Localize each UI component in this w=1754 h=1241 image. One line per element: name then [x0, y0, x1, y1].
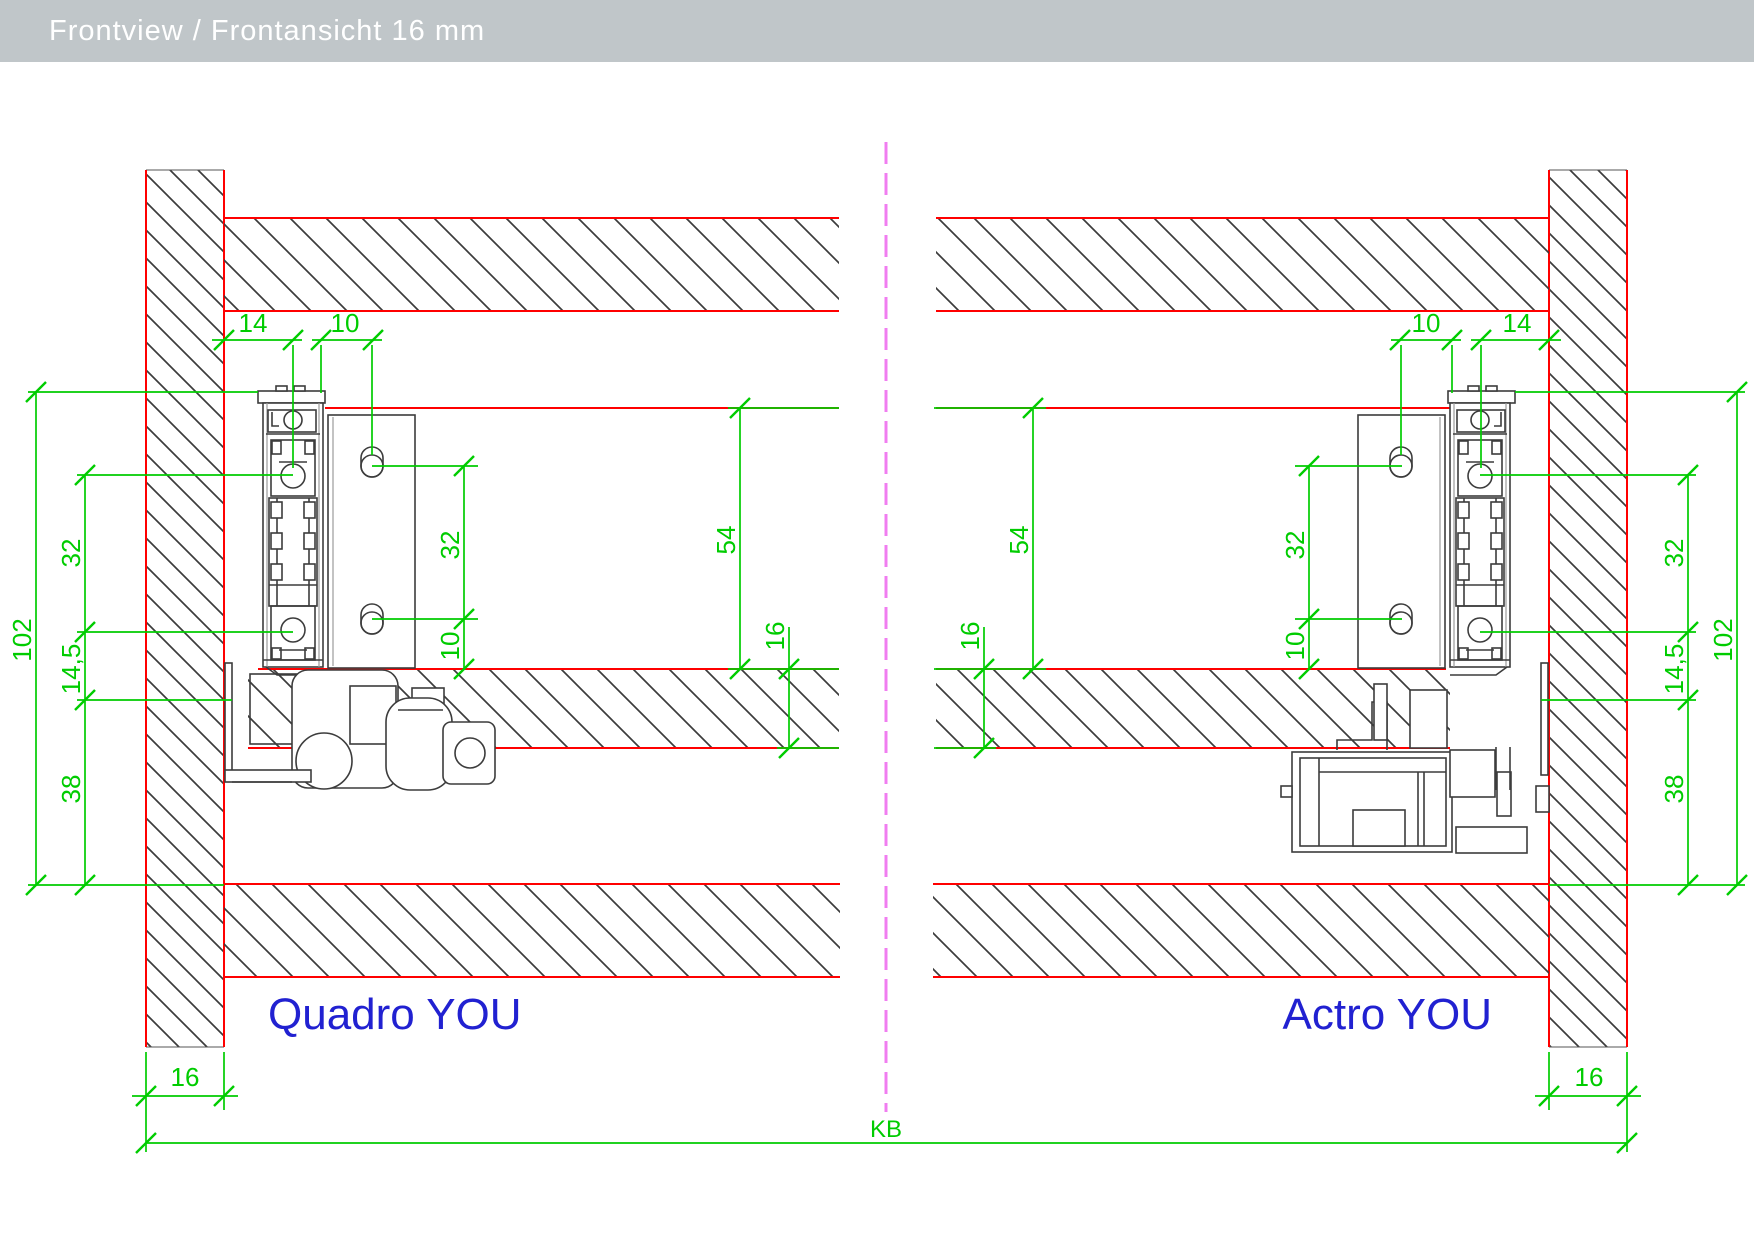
kb-label: KB — [870, 1116, 902, 1143]
dim-mid-offset-left: 14,5 — [56, 644, 86, 695]
dim-front-offset-right: 10 — [1412, 308, 1441, 338]
kb-dimension: KB — [136, 1116, 1637, 1153]
dim-total-height-left: 102 — [7, 618, 37, 661]
technical-drawing: 14 10 102 32 14,5 38 32 10 — [0, 0, 1754, 1241]
dim-front-top-to-shelf-right: 54 — [1004, 526, 1034, 555]
title-bar: Frontview / Frontansicht 16 mm — [0, 0, 1754, 62]
top-shelf-right — [936, 218, 1549, 311]
dim-hole-to-shelf-right: 10 — [1280, 632, 1310, 661]
dim-total-height-right: 102 — [1708, 618, 1738, 661]
dim-panel-thickness-right: 16 — [1575, 1062, 1604, 1092]
dim-back-offset-right: 14 — [1503, 308, 1532, 338]
dim-screw-spacing-left: 32 — [56, 539, 86, 568]
drawing-page: 14 10 102 32 14,5 38 32 10 — [0, 0, 1754, 1241]
left-product-label: Quadro YOU — [268, 990, 522, 1039]
dim-panel-thickness-left: 16 — [171, 1062, 200, 1092]
dim-hole-to-shelf-left: 10 — [435, 632, 465, 661]
dim-back-offset-left: 14 — [239, 308, 268, 338]
dim-front-hole-spacing-right: 32 — [1280, 531, 1310, 560]
top-shelf-left — [224, 218, 839, 311]
bottom-shelf-right — [933, 884, 1549, 977]
bottom-shelf-left — [224, 884, 840, 977]
right-wall-panel — [1549, 170, 1627, 1047]
dim-screw-spacing-right: 32 — [1659, 539, 1689, 568]
dim-mid-offset-right: 14,5 — [1659, 644, 1689, 695]
right-product-label: Actro YOU — [1283, 990, 1492, 1039]
dim-front-top-to-shelf-left: 54 — [711, 526, 741, 555]
left-wall-panel — [146, 170, 224, 1047]
dim-front-offset-left: 10 — [331, 308, 360, 338]
dim-shelf-thickness-right: 16 — [955, 622, 985, 651]
dim-bottom-offset-left: 38 — [56, 775, 86, 804]
page-title: Frontview / Frontansicht 16 mm — [0, 15, 485, 48]
dim-front-hole-spacing-left: 32 — [435, 531, 465, 560]
middle-shelf-right — [936, 669, 1450, 748]
dim-shelf-thickness-left: 16 — [760, 622, 790, 651]
dim-bottom-offset-right: 38 — [1659, 775, 1689, 804]
